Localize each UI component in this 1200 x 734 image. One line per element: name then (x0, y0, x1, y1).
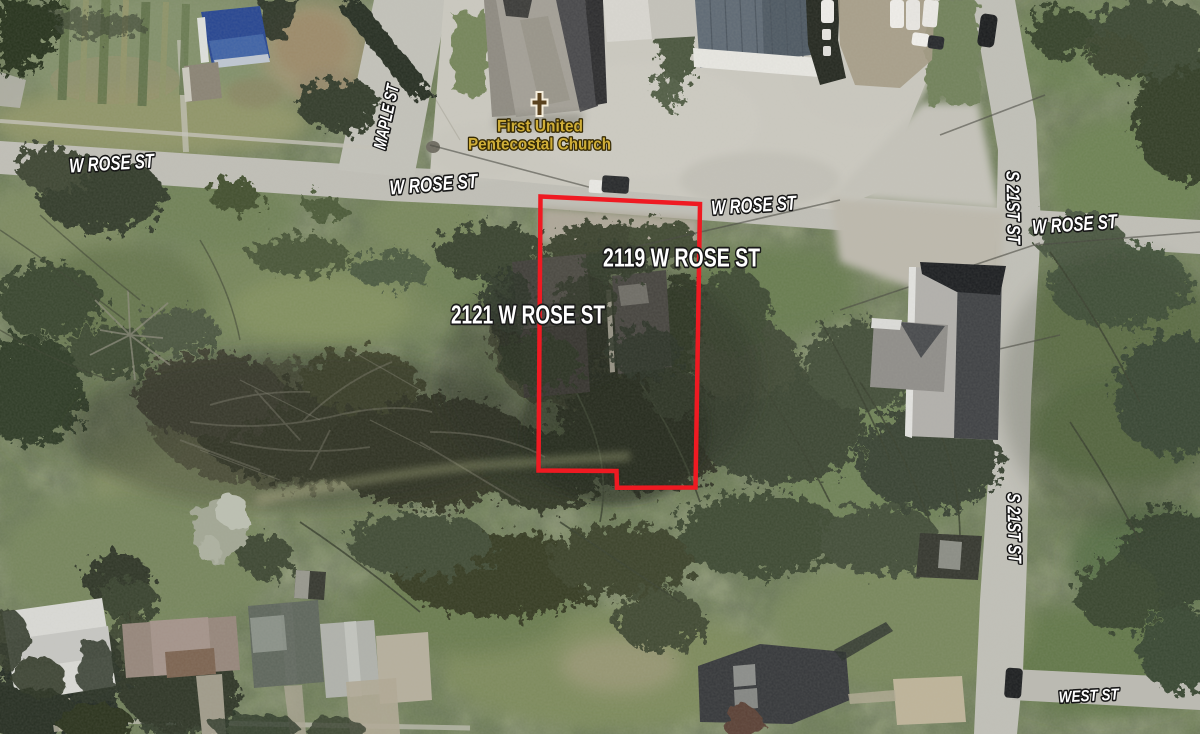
svg-text:2121 W ROSE ST: 2121 W ROSE ST (451, 302, 605, 330)
svg-text:2119 W ROSE ST: 2119 W ROSE ST (603, 245, 760, 273)
svg-text:Pentecostal Church: Pentecostal Church (468, 135, 611, 154)
svg-text:First United: First United (497, 117, 583, 136)
svg-text:WEST ST: WEST ST (1058, 686, 1120, 706)
svg-text:S 21ST ST: S 21ST ST (1002, 171, 1024, 246)
svg-text:S 21ST ST: S 21ST ST (1003, 493, 1025, 565)
